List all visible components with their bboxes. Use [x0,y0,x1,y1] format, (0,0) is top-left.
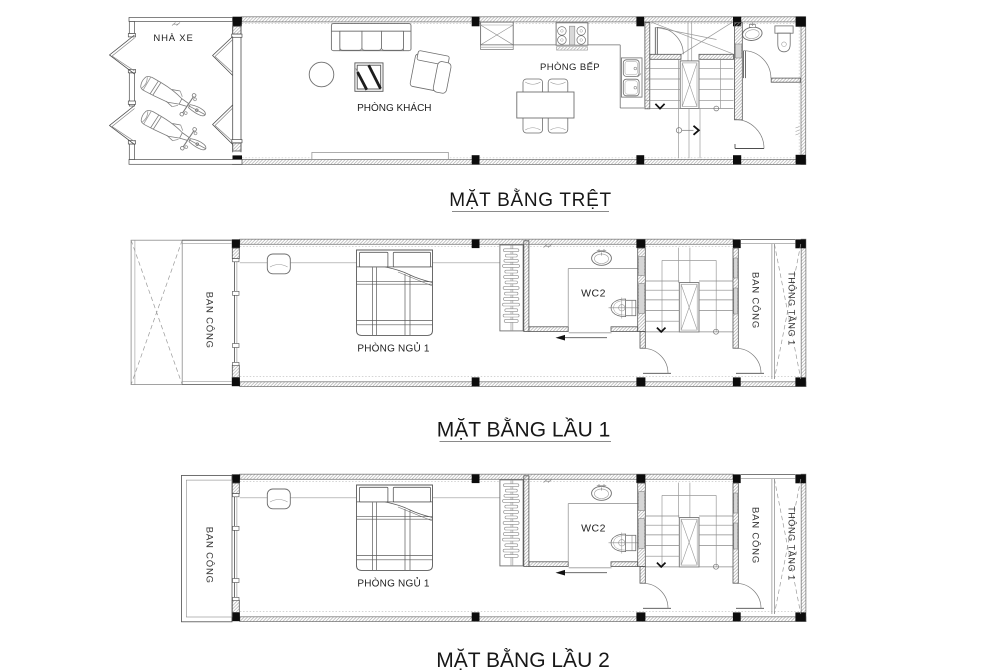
svg-text:PHÒNG BẾP: PHÒNG BẾP [540,62,600,73]
svg-text:PHÒNG NGỦ 1: PHÒNG NGỦ 1 [357,577,429,590]
svg-text:THÔNG TẦNG 1: THÔNG TẦNG 1 [787,506,797,581]
svg-text:BAN CÔNG: BAN CÔNG [204,527,215,584]
svg-text:WC2: WC2 [581,523,606,535]
svg-text:MẶT BẰNG LẦU 2: MẶT BẰNG LẦU 2 [436,648,610,670]
svg-text:PHÒNG KHÁCH: PHÒNG KHÁCH [357,101,431,114]
svg-text:WC2: WC2 [581,288,606,300]
svg-text:THÔNG TẦNG 1: THÔNG TẦNG 1 [787,271,797,346]
svg-text:BAN CÔNG: BAN CÔNG [204,292,215,349]
svg-text:NHÀ XE: NHÀ XE [153,33,193,44]
svg-text:MẶT BẰNG TRỆT: MẶT BẰNG TRỆT [449,189,612,211]
svg-text:MẶT BẰNG LẦU 1: MẶT BẰNG LẦU 1 [437,418,611,442]
svg-text:PHÒNG NGỦ 1: PHÒNG NGỦ 1 [357,342,429,355]
svg-text:BAN CÔNG: BAN CÔNG [750,507,761,564]
svg-text:BAN CÔNG: BAN CÔNG [750,272,761,329]
